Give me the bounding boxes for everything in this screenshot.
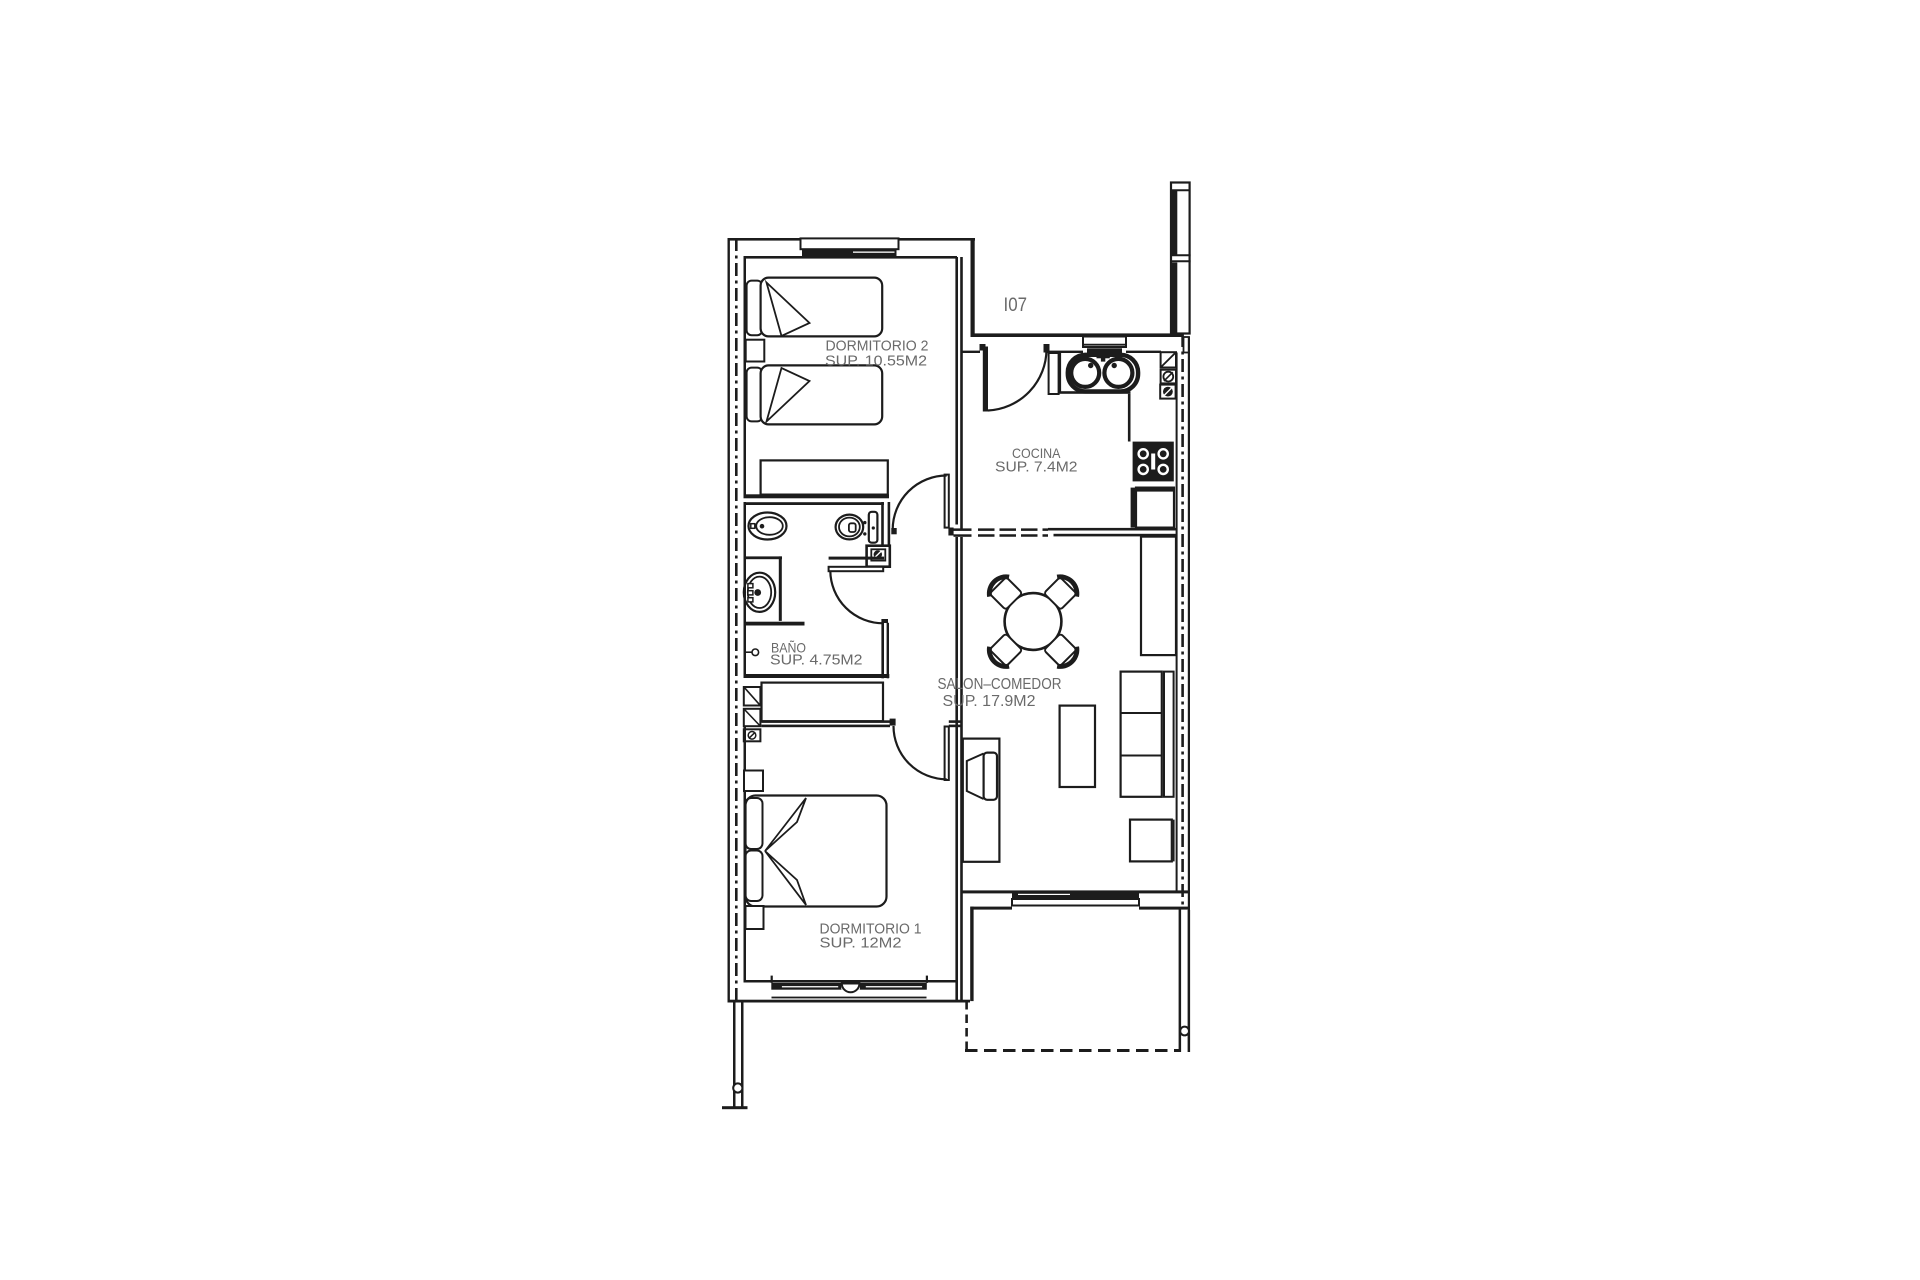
svg-text:SUP. 7.4M2: SUP. 7.4M2 bbox=[995, 459, 1078, 476]
svg-text:I07: I07 bbox=[1004, 295, 1028, 316]
svg-text:SUP. 12M2: SUP. 12M2 bbox=[820, 935, 902, 952]
svg-text:SUP. 10.55M2: SUP. 10.55M2 bbox=[825, 353, 927, 370]
svg-text:SALON–COMEDOR: SALON–COMEDOR bbox=[938, 676, 1062, 693]
svg-text:SUP. 4.75M2: SUP. 4.75M2 bbox=[770, 652, 863, 669]
svg-text:SUP. 17.9M2: SUP. 17.9M2 bbox=[943, 693, 1036, 710]
